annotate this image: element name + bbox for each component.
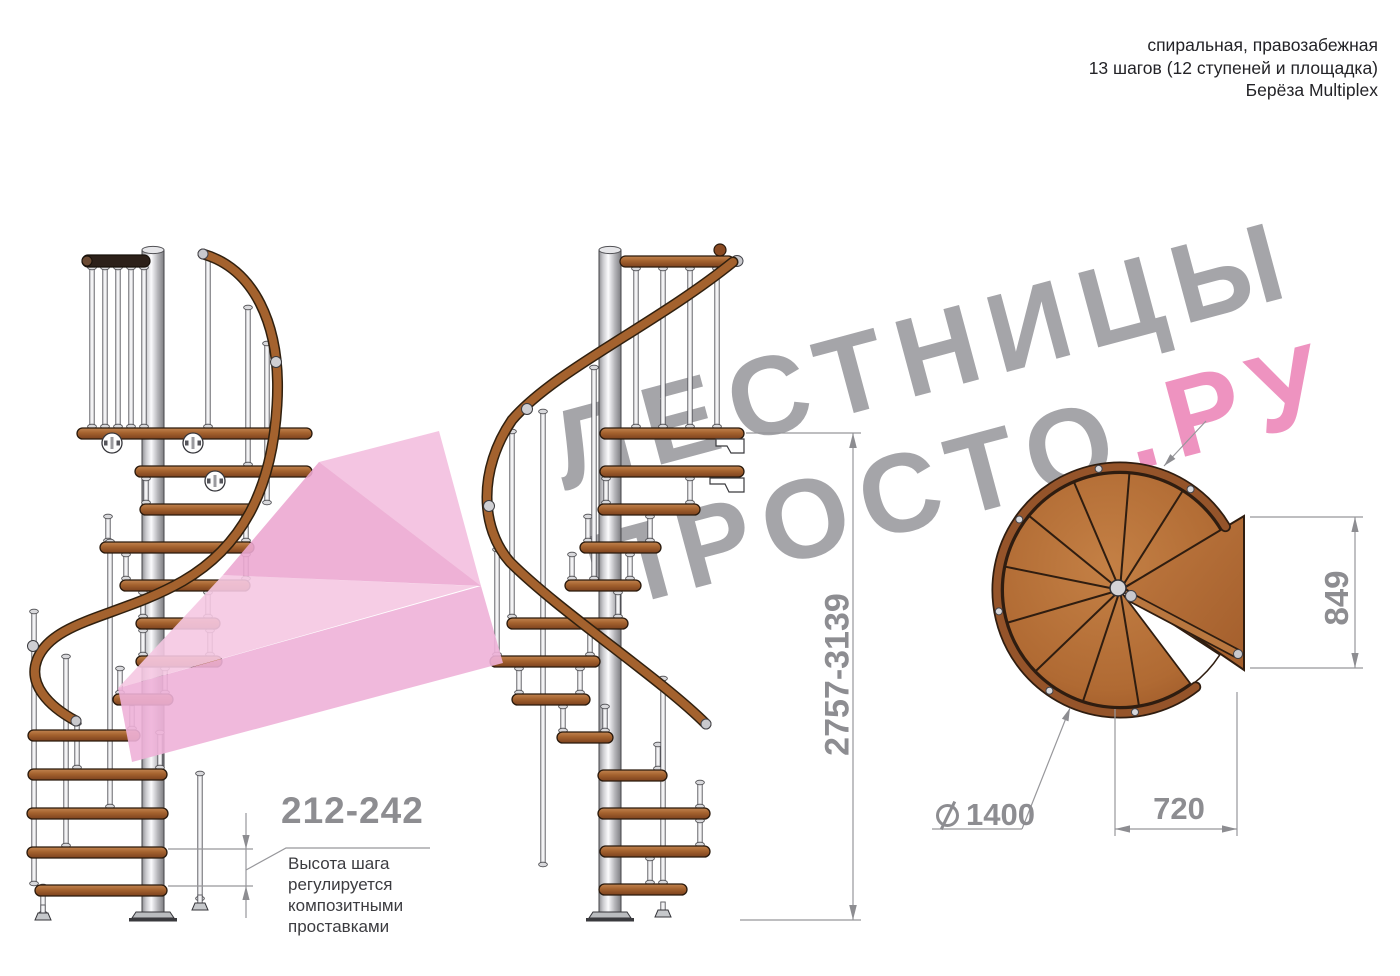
- diameter-value: 1400: [966, 797, 1035, 833]
- dimension-total-height: 2757-3139: [819, 575, 858, 775]
- dimension-step-height: 212-242: [281, 790, 424, 832]
- watermark-arrow-logo: [0, 0, 1400, 976]
- step-height-note: Высота шага регулируется композитными пр…: [288, 853, 403, 937]
- drawing-title-block: спиральная, правозабежная 13 шагов (12 с…: [1089, 34, 1378, 102]
- title-line-material: Берёза Multiplex: [1089, 79, 1378, 102]
- dimension-diameter: 1400: [936, 797, 1035, 833]
- title-line-type: спиральная, правозабежная: [1089, 34, 1378, 57]
- dimension-platform-width: 720: [1129, 791, 1229, 827]
- dimension-platform-depth: 849: [1318, 538, 1356, 658]
- spiral-staircase-drawing-page: ЛЕСТНИЦЫ ПРОСТО.РУ: [0, 0, 1400, 976]
- title-line-steps: 13 шагов (12 ступеней и площадка): [1089, 57, 1378, 80]
- diameter-icon: [936, 804, 959, 827]
